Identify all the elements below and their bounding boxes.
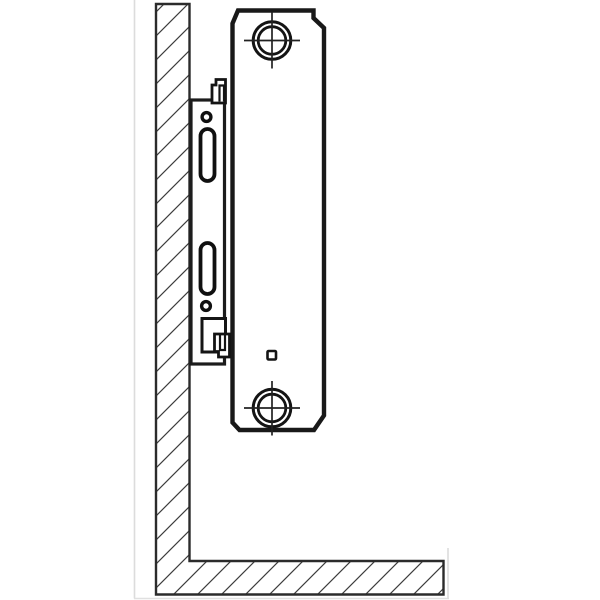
diagram-canvas [0,0,600,600]
diagram-shapes-group [134,0,449,599]
radiator-panel-outline [233,11,325,431]
radiator-wall-mounting-diagram [0,0,600,600]
bracket-hole-upper [202,113,211,122]
bracket-slot-lower [201,243,215,294]
bracket-hole-lower [202,302,211,311]
bracket-slot-upper [201,129,215,181]
drain-square-marker [268,351,277,360]
